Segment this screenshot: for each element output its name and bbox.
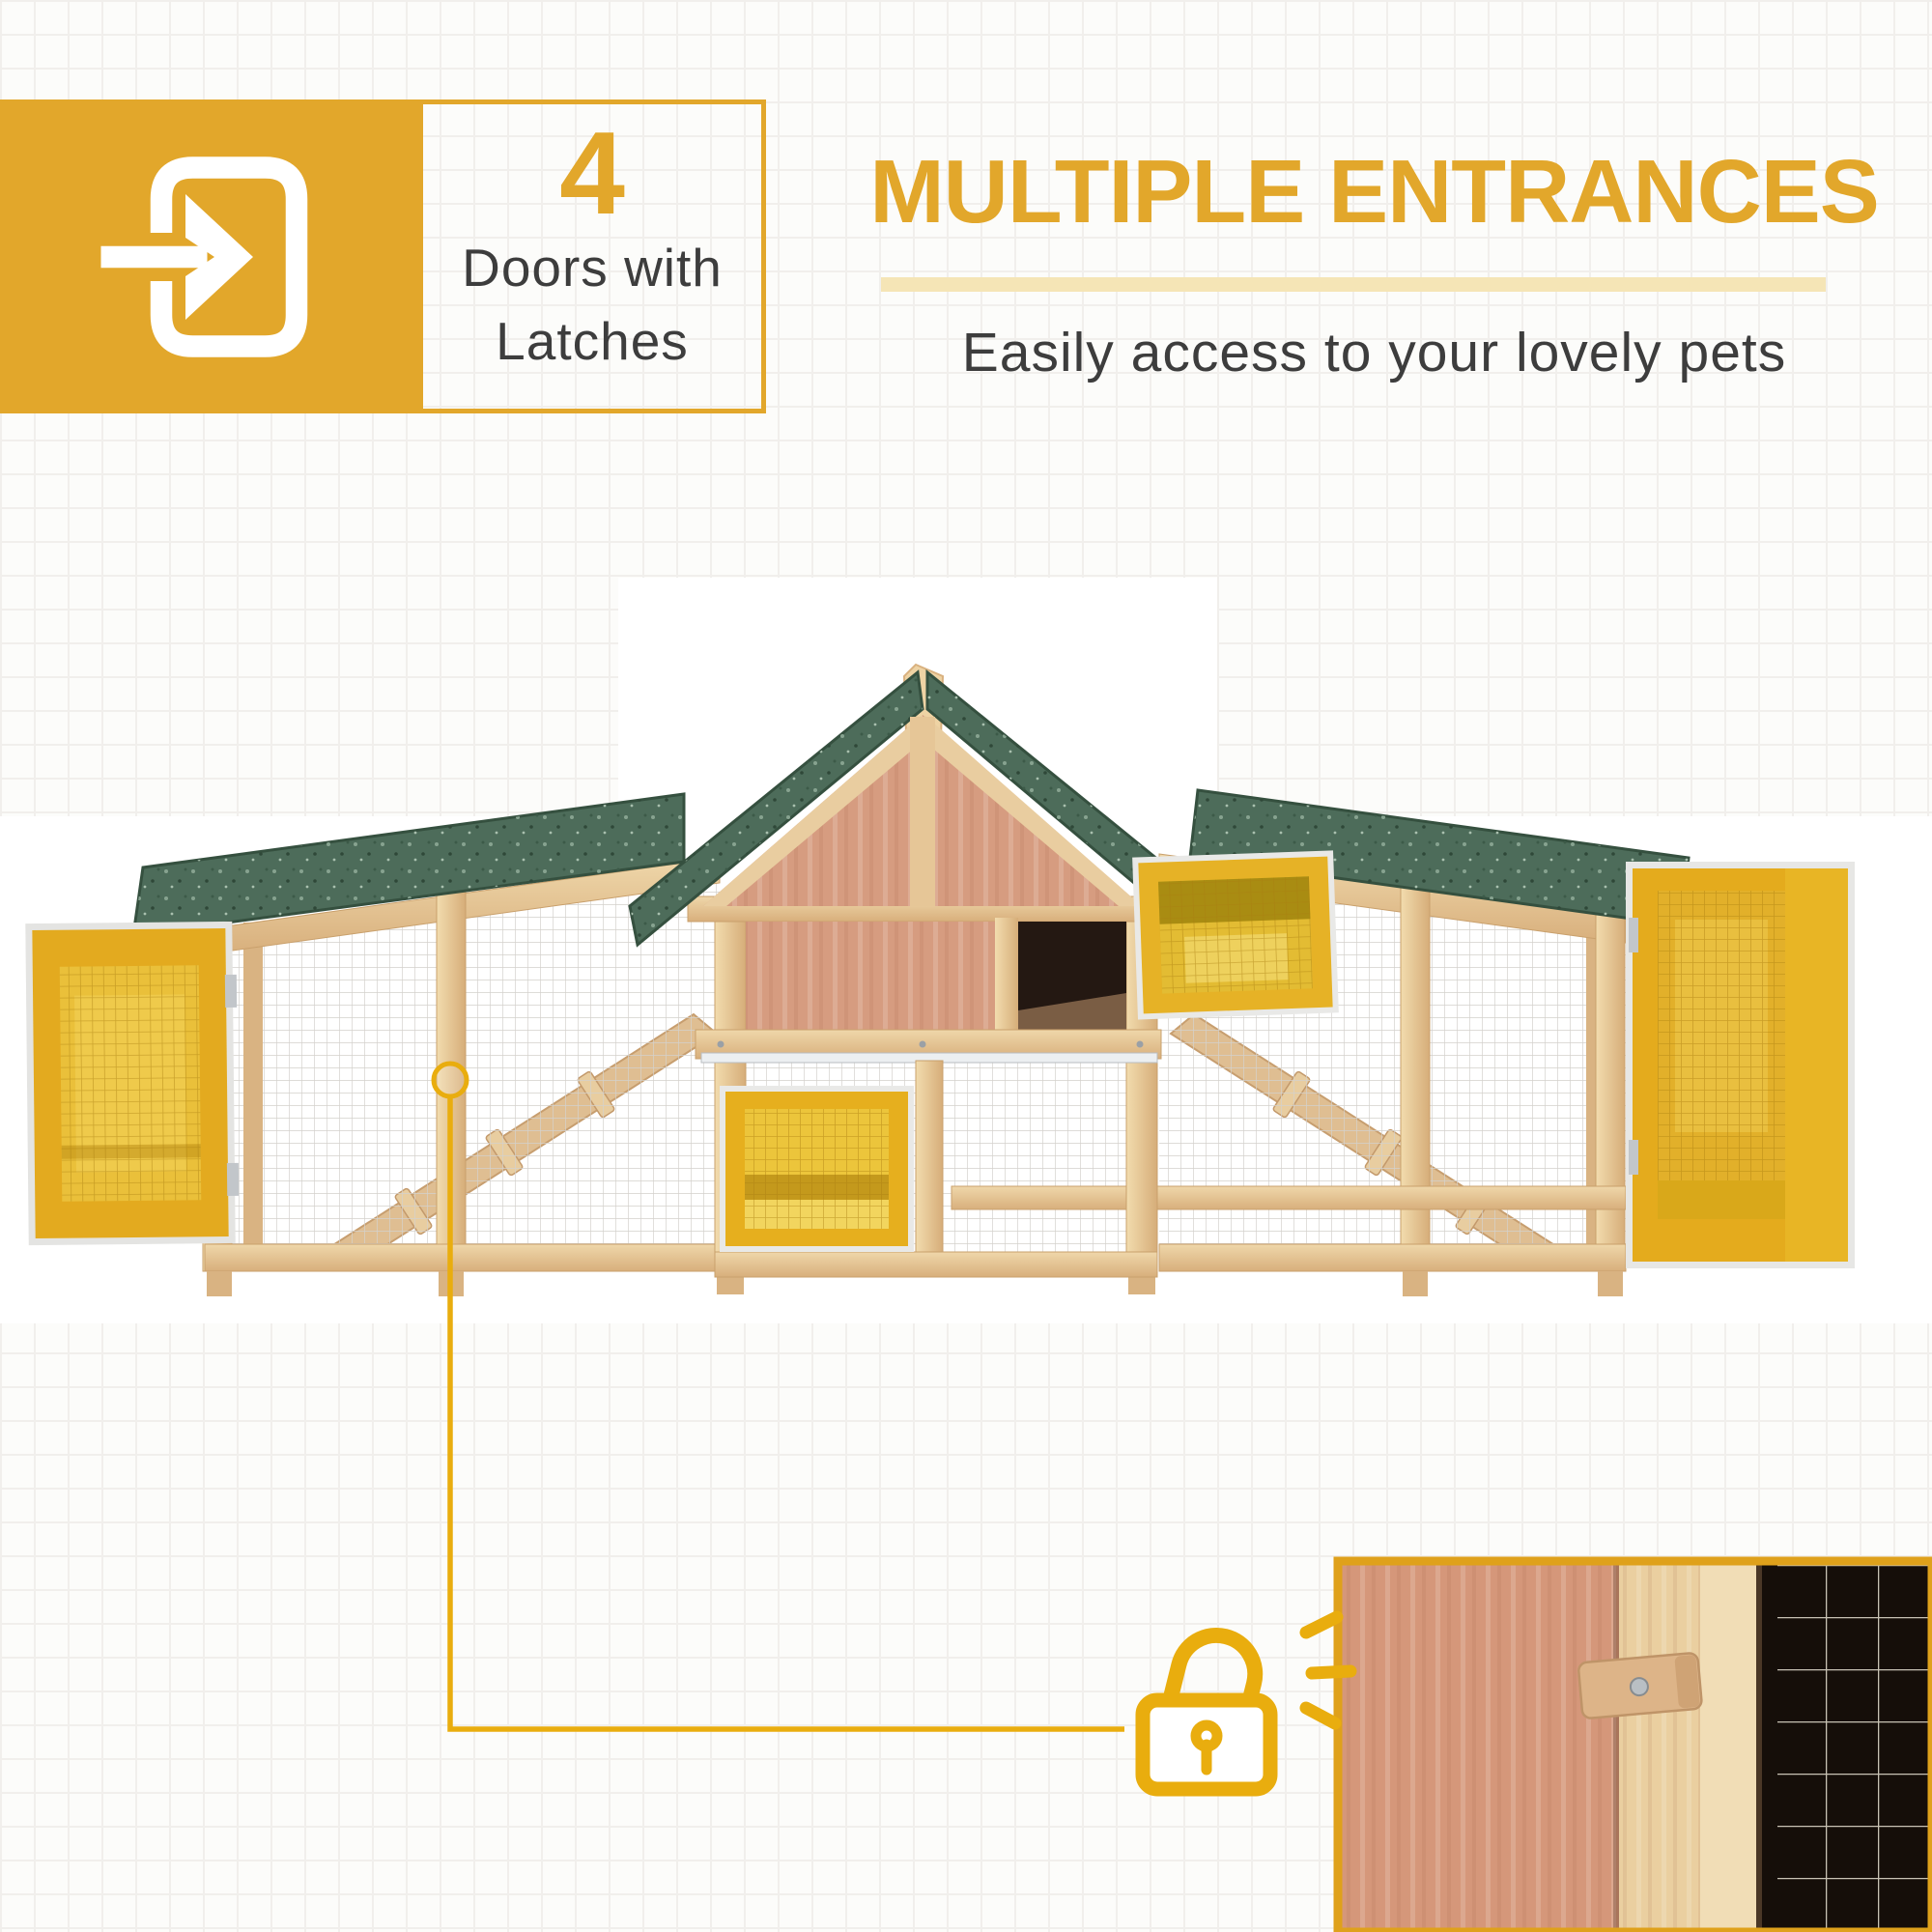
- latch-position-circle: [434, 1064, 467, 1096]
- door-left-open: [25, 922, 239, 1245]
- door-upper-open: [1132, 850, 1339, 1019]
- headline-underline: [881, 277, 1826, 292]
- open-padlock-icon: [1143, 1617, 1350, 1789]
- marketing-slide: 4 Doors with Latches MULTIPLE ENTRANCES …: [0, 0, 1932, 1932]
- feature-badge: 4 Doors with Latches: [418, 99, 766, 413]
- latch-close-up-photo: [1338, 1561, 1932, 1932]
- latch-screw: [1630, 1677, 1649, 1696]
- feature-label-line1: Doors with: [462, 232, 723, 305]
- headline-title: MULTIPLE ENTRANCES: [816, 147, 1932, 237]
- door-right-open: [1626, 862, 1855, 1268]
- door-badge-tile: [0, 99, 418, 413]
- feature-label-line2: Latches: [496, 305, 689, 379]
- headline-subtitle: Easily access to your lovely pets: [816, 321, 1932, 384]
- door-lower: [720, 1086, 914, 1252]
- feature-count: 4: [559, 114, 625, 232]
- door-enter-arrow-icon: [89, 136, 330, 378]
- hutch-photo: [25, 665, 1855, 1296]
- latch-block: [1578, 1653, 1703, 1719]
